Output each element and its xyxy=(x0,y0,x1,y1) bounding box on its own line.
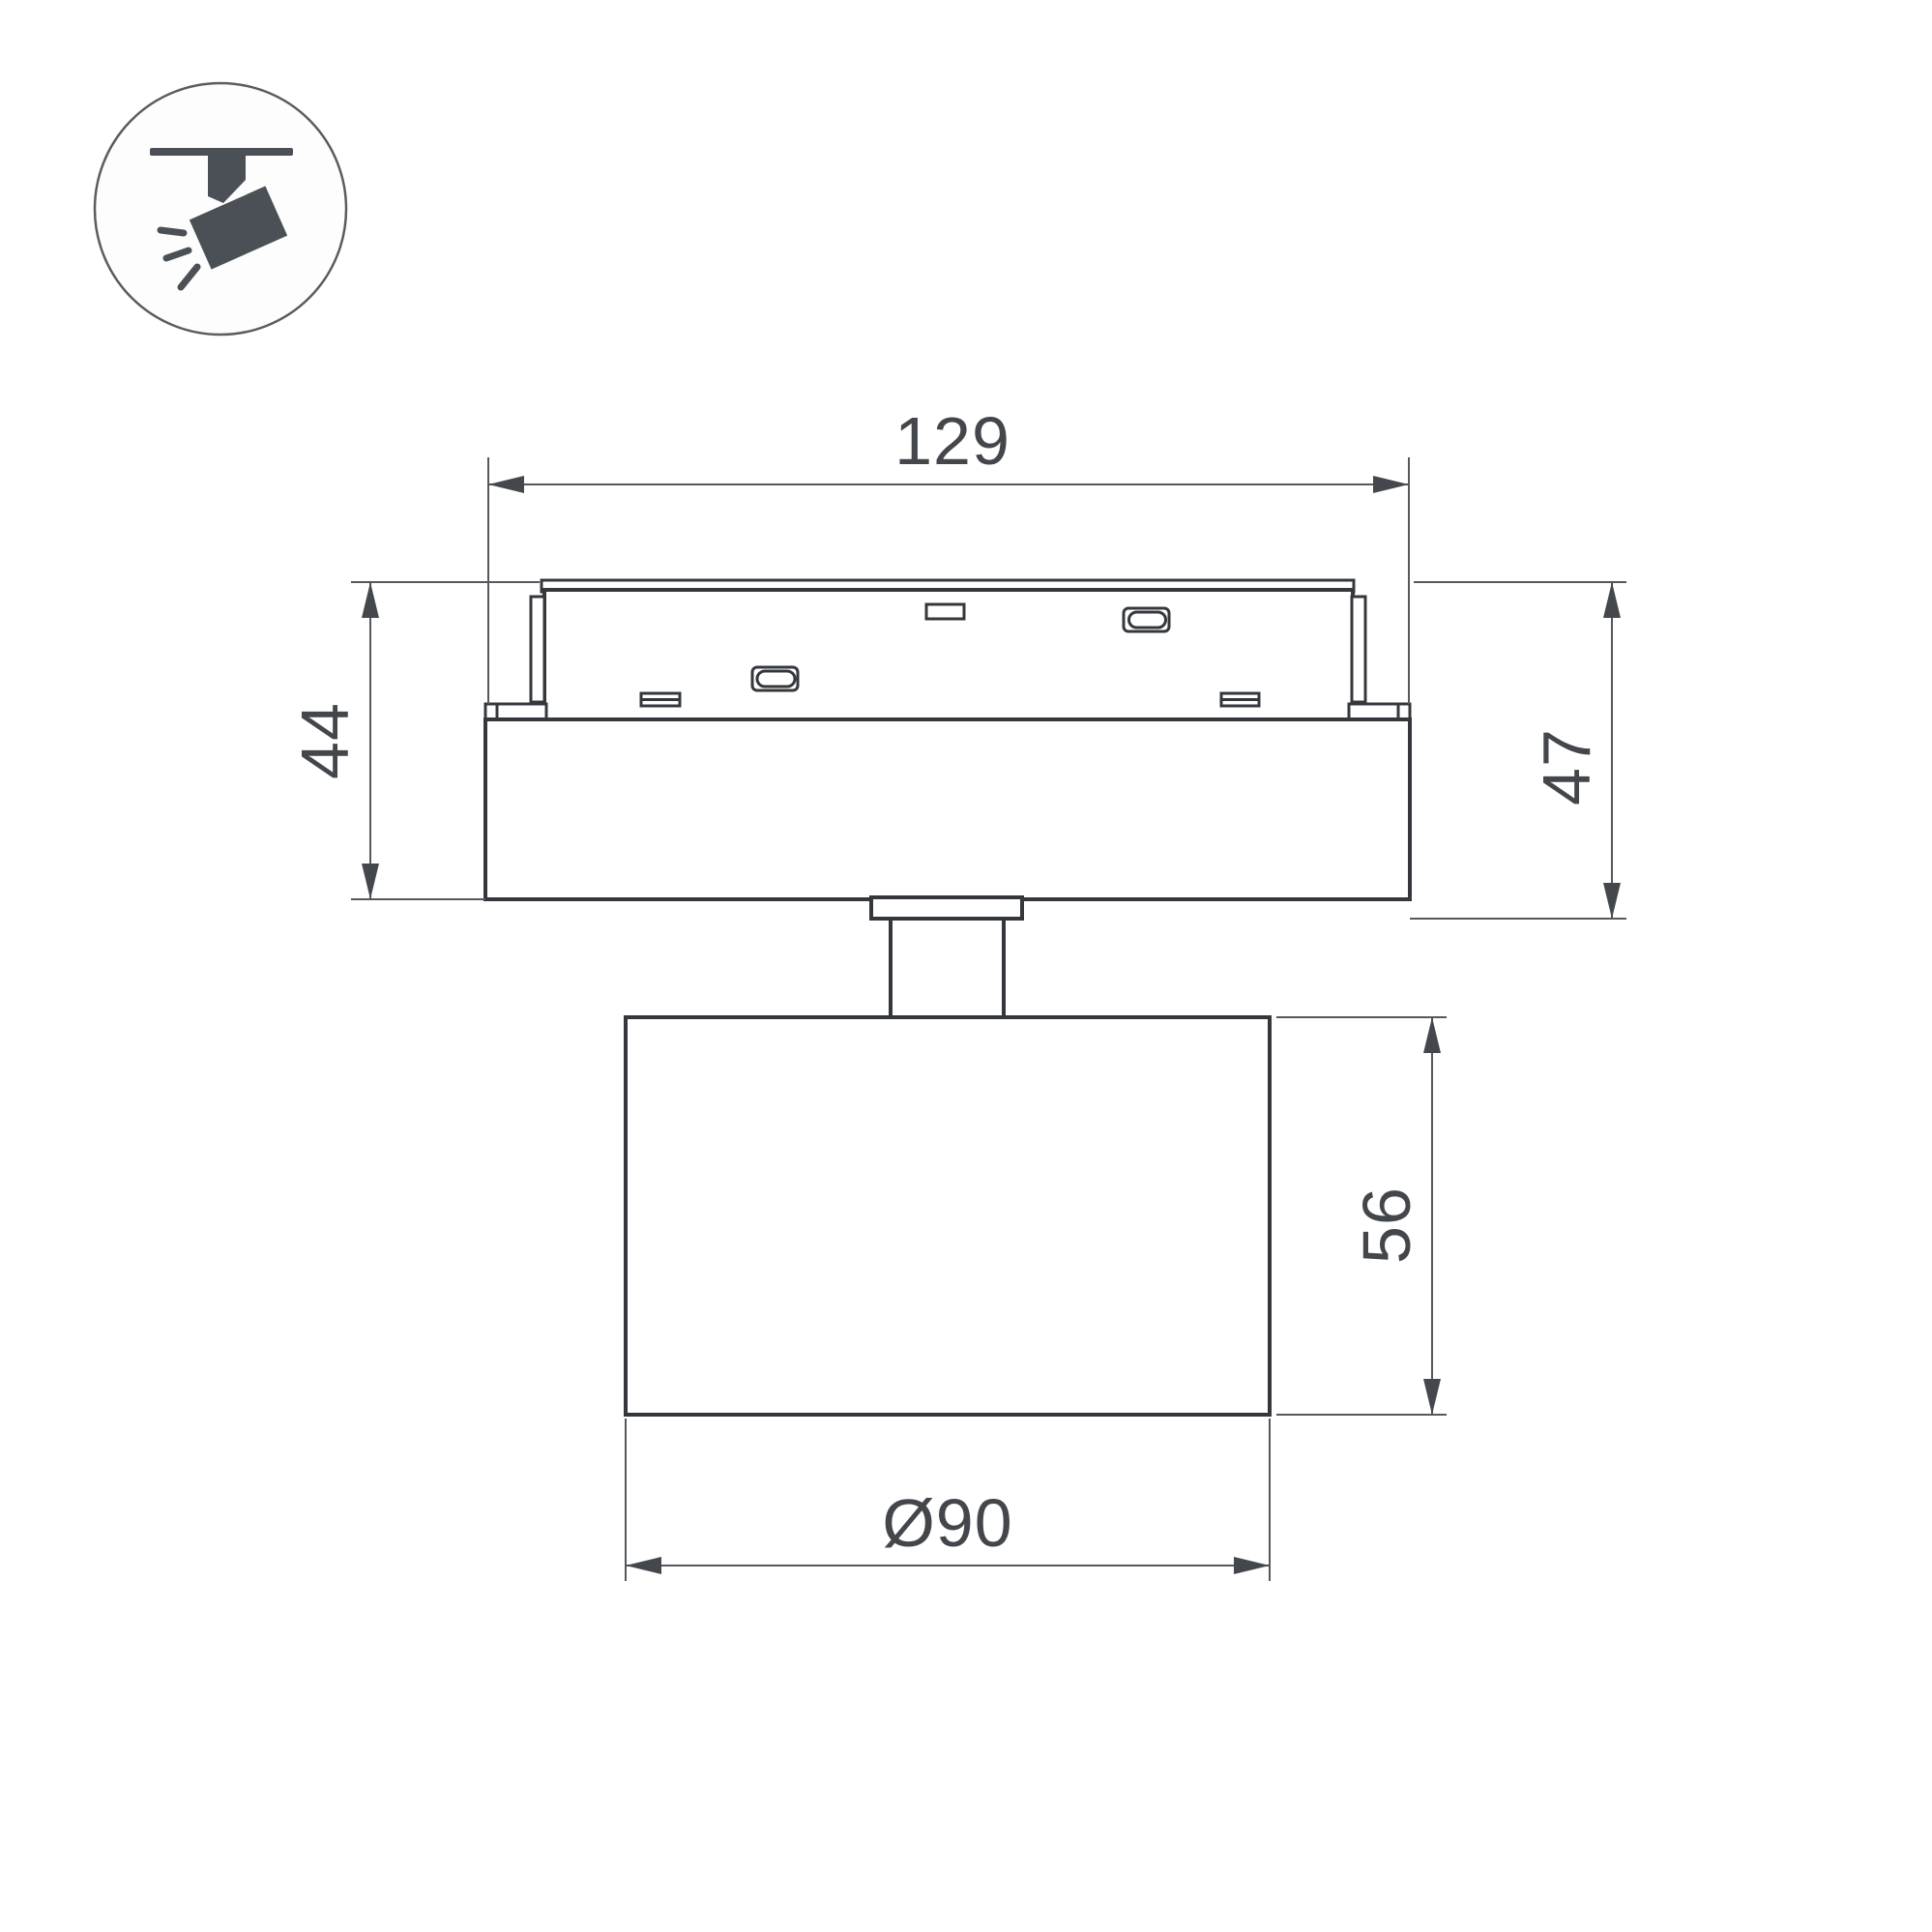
dimension-height-56: 56 xyxy=(1276,1017,1447,1415)
dim-47-label: 47 xyxy=(1529,728,1604,805)
dim-90-arrow-right xyxy=(1234,1557,1270,1574)
adapter-flange-housing xyxy=(485,719,1410,899)
dim-44-label: 44 xyxy=(287,702,363,779)
icon-light-ray-1 xyxy=(161,230,184,233)
dim-90-label: Ø90 xyxy=(882,1485,1012,1561)
lamp-head xyxy=(626,1017,1270,1415)
adapter-wing-left xyxy=(485,704,546,719)
dim-129-label: 129 xyxy=(894,403,1010,479)
adapter-wing-right xyxy=(1349,704,1410,719)
dim-44-arrow-bottom xyxy=(362,864,379,899)
dim-56-label: 56 xyxy=(1349,1186,1424,1264)
drawing-page: 129 44 47 56 xyxy=(0,0,1932,1932)
dim-44-arrow-top xyxy=(362,582,379,618)
dimension-diameter-90: Ø90 xyxy=(626,1419,1270,1581)
swivel-stem xyxy=(891,919,1004,1017)
dim-47-arrow-top xyxy=(1603,582,1621,618)
adapter-slot-left-inner xyxy=(757,671,795,687)
luminaire-side-view xyxy=(485,580,1410,1415)
dim-47-arrow-bottom xyxy=(1603,883,1621,919)
adapter-clip-tab-right xyxy=(1352,597,1365,702)
dim-90-arrow-left xyxy=(626,1557,661,1574)
track-spotlight-icon xyxy=(95,83,346,335)
dim-129-arrow-left xyxy=(488,476,524,493)
dim-56-arrow-top xyxy=(1423,1017,1441,1053)
dim-56-arrow-bottom xyxy=(1423,1379,1441,1415)
swivel-collar xyxy=(871,897,1022,919)
adapter-slot-right-inner xyxy=(1129,612,1166,628)
dimension-height-47: 47 xyxy=(1410,582,1626,919)
adapter-clip-tab-left xyxy=(531,597,544,702)
dim-129-arrow-right xyxy=(1373,476,1409,493)
adapter-slot-center xyxy=(926,604,964,619)
luminaire-dimension-drawing: 129 44 47 56 xyxy=(0,0,1932,1932)
